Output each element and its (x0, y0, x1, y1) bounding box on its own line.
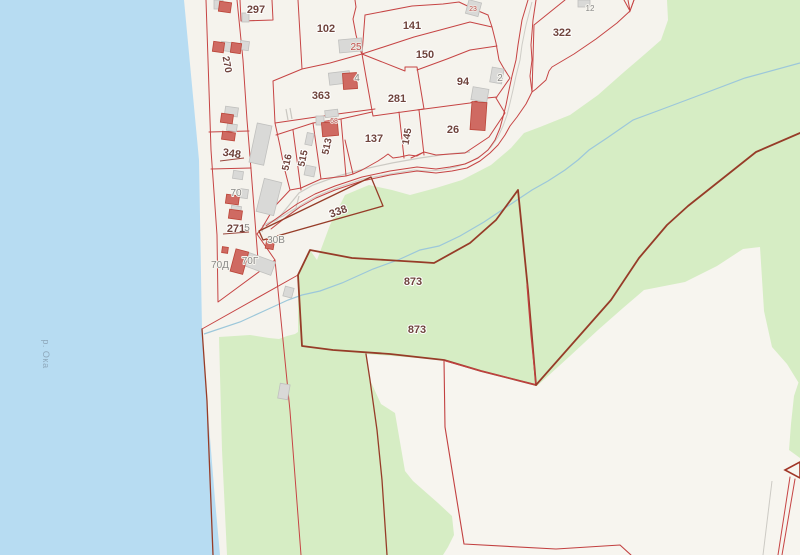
svg-text:70Г: 70Г (242, 256, 259, 267)
svg-text:68: 68 (330, 118, 338, 125)
svg-text:102: 102 (317, 23, 335, 35)
svg-text:363: 363 (312, 90, 330, 102)
svg-text:4: 4 (354, 73, 360, 84)
svg-text:23: 23 (469, 6, 477, 13)
svg-text:26: 26 (447, 124, 459, 136)
svg-text:322: 322 (553, 27, 571, 39)
svg-text:94: 94 (457, 76, 470, 88)
svg-text:297: 297 (247, 4, 265, 16)
svg-text:873: 873 (404, 276, 422, 288)
svg-text:141: 141 (403, 20, 421, 32)
svg-text:2: 2 (497, 73, 503, 84)
svg-text:281: 281 (388, 93, 406, 105)
svg-text:12: 12 (586, 4, 595, 13)
svg-text:70Д: 70Д (211, 260, 229, 271)
svg-text:30В: 30В (267, 235, 285, 246)
svg-text:р. Ока: р. Ока (41, 339, 51, 368)
svg-text:873: 873 (408, 324, 426, 336)
svg-text:25: 25 (350, 42, 362, 53)
svg-text:137: 137 (365, 133, 383, 145)
svg-text:70: 70 (230, 188, 242, 199)
svg-text:150: 150 (416, 49, 434, 61)
